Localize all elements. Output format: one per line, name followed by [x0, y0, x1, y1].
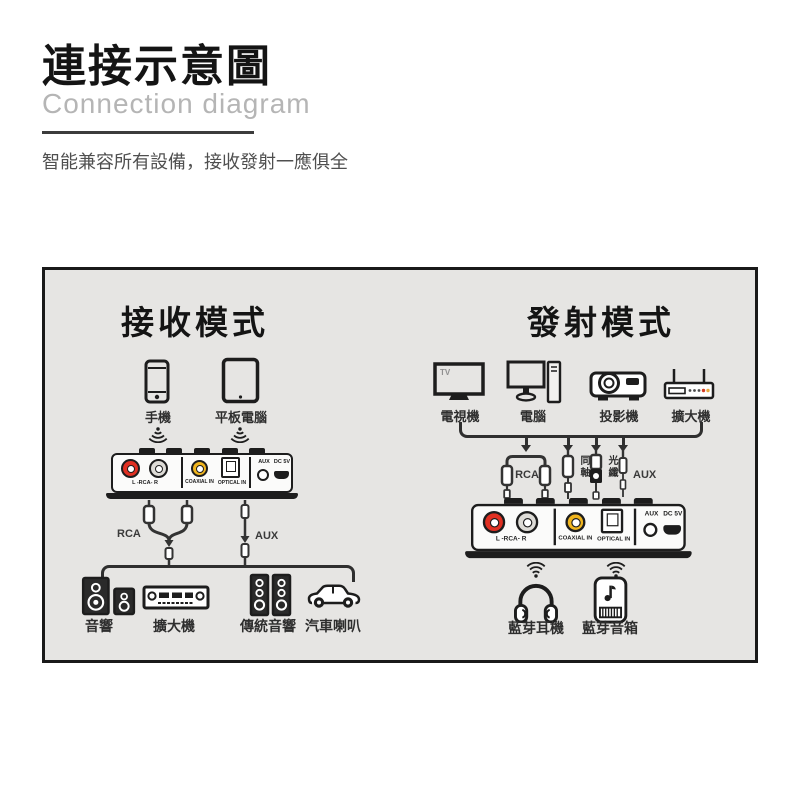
- desktop-computer-icon: [506, 360, 562, 404]
- page: 連接示意圖 Connection diagram 智能兼容所有設備，接收發射一應…: [0, 0, 800, 800]
- wireless-down-icon: [229, 426, 251, 443]
- panel-divider: [634, 509, 636, 546]
- headphones-icon: [513, 580, 559, 623]
- bookshelf-speakers-icon: [81, 576, 138, 617]
- rca-left-jack: [483, 511, 505, 533]
- device-base: [465, 551, 692, 558]
- panel-divider: [181, 457, 183, 488]
- tv-icon: TV: [433, 362, 485, 403]
- aux-jack: [643, 523, 657, 537]
- arrow-to-aux-cable: [622, 435, 625, 446]
- projector-icon: [589, 366, 647, 403]
- optical-plug: [588, 450, 604, 502]
- antenna-amplifier-icon: [663, 368, 715, 401]
- receive-output-connector: [101, 565, 355, 582]
- optical-port: [601, 509, 623, 534]
- output-label-car-speakers: 汽車喇叭: [297, 616, 369, 636]
- power-port-label: DC 5V: [271, 459, 293, 465]
- device-front-panel: L -RCA- R COAXIAL IN OPTICAL IN AUX DC 5…: [471, 504, 686, 551]
- audio-adapter-device: L -RCA- R COAXIAL IN OPTICAL IN AUX DC 5…: [471, 498, 686, 558]
- headphones-label: 藍芽耳機: [503, 618, 569, 638]
- coaxial-jack: [191, 460, 208, 477]
- power-port-label: DC 5V: [660, 511, 686, 518]
- aux-cable-label: AUX: [255, 530, 278, 542]
- transmit-source-connector: [459, 422, 703, 438]
- coaxial-cable-label: 同軸: [578, 455, 588, 479]
- tv-screen-badge: TV: [440, 368, 450, 377]
- tower-speakers-icon: [249, 573, 292, 617]
- rca-y-cable: [135, 500, 205, 566]
- stereo-receiver-icon: [142, 585, 210, 611]
- coaxial-plug: [561, 450, 575, 502]
- device-base: [106, 493, 298, 499]
- panel-divider: [554, 509, 556, 546]
- connection-diagram-panel: 接收模式 手機 平板電腦: [42, 267, 758, 663]
- phone-label: 手機: [128, 407, 188, 426]
- optical-port-label: OPTICAL IN: [217, 481, 247, 487]
- usb-power-port: [274, 471, 289, 479]
- rca-port-label: L -RCA- R: [115, 480, 175, 486]
- device-front-panel: L -RCA- R COAXIAL IN OPTICAL IN AUX DC 5…: [111, 453, 293, 493]
- arrow-to-rca-cable: [525, 435, 528, 446]
- car-icon: [307, 582, 361, 610]
- transmit-aux-label: AUX: [633, 469, 656, 481]
- tablet-label: 平板電腦: [203, 407, 279, 426]
- phone-icon: [144, 359, 170, 404]
- transmit-mode-title: 發射模式: [483, 296, 719, 344]
- page-title: 連接示意圖: [42, 30, 272, 94]
- bluetooth-speaker-icon: [593, 576, 628, 624]
- coaxial-jack: [565, 512, 585, 532]
- arrow-to-coaxial-cable: [567, 435, 570, 446]
- optical-port: [221, 457, 240, 478]
- wireless-down-icon: [147, 426, 169, 443]
- panel-divider: [249, 457, 251, 488]
- usb-power-port: [663, 525, 681, 534]
- optical-cable-label: 光纖: [606, 455, 616, 479]
- wifi-signal-icon: [525, 562, 547, 579]
- rca-cable-label: RCA: [117, 528, 141, 540]
- coaxial-port-label: COAXIAL IN: [184, 480, 215, 486]
- rca-left-jack: [121, 459, 140, 478]
- aux-jack: [257, 469, 269, 481]
- receive-mode-title: 接收模式: [75, 296, 315, 344]
- tablet-icon: [221, 357, 260, 404]
- rca-right-jack: [516, 511, 538, 533]
- arrow-to-optical-cable: [595, 435, 598, 446]
- bt-speaker-label: 藍芽音箱: [577, 618, 643, 638]
- aux-plug: [618, 450, 628, 502]
- optical-port-label: OPTICAL IN: [596, 537, 631, 544]
- output-label-traditional-audio: 傳統音響: [228, 616, 308, 636]
- transmit-rca-label: RCA: [515, 469, 539, 481]
- coaxial-port-label: COAXIAL IN: [557, 536, 594, 543]
- aux-cable: [239, 500, 251, 566]
- rca-right-jack: [149, 459, 168, 478]
- output-label-speakers: 音響: [69, 616, 129, 636]
- rca-port-label: L -RCA- R: [476, 536, 547, 543]
- page-tagline: 智能兼容所有設備，接收發射一應俱全: [42, 148, 348, 174]
- audio-adapter-device: L -RCA- R COAXIAL IN OPTICAL IN AUX DC 5…: [111, 448, 293, 499]
- page-subtitle: Connection diagram: [42, 88, 311, 120]
- title-underline: [42, 131, 254, 134]
- output-label-amplifier: 擴大機: [144, 616, 204, 636]
